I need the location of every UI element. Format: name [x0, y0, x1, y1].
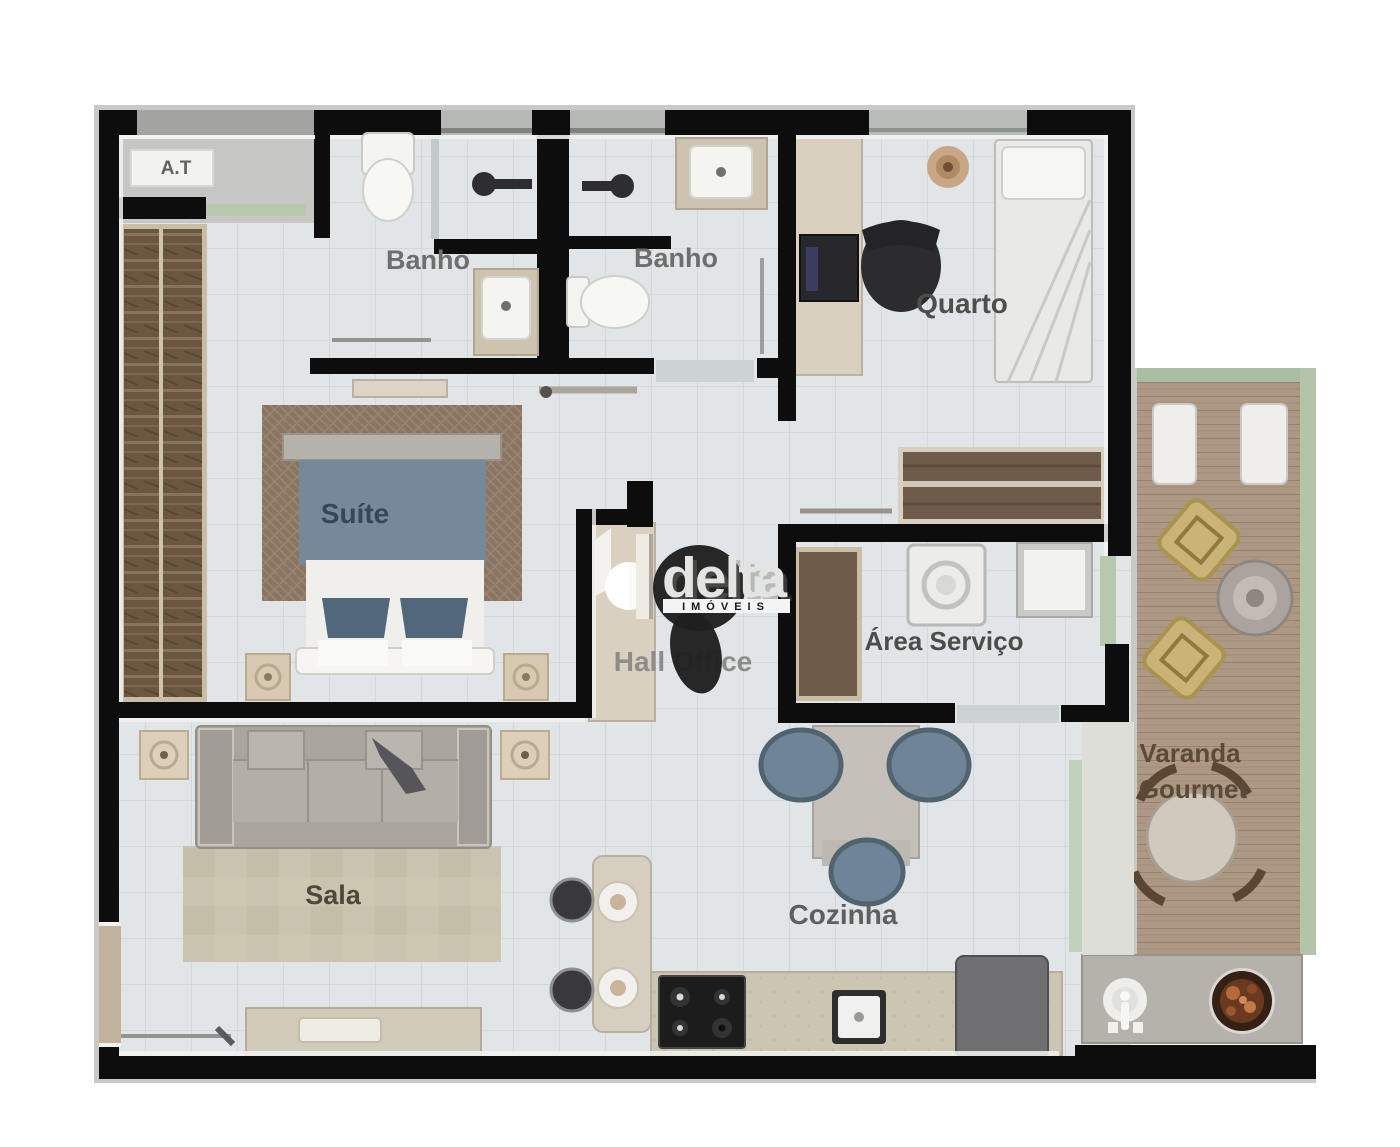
svg-text:A.T: A.T: [161, 158, 192, 179]
svg-text:IMÓVEIS: IMÓVEIS: [682, 600, 770, 613]
svg-text:Quarto: Quarto: [916, 288, 1008, 319]
svg-text:Varanda: Varanda: [1139, 738, 1241, 768]
svg-text:Área Serviço: Área Serviço: [865, 626, 1024, 656]
svg-text:Banho: Banho: [386, 245, 470, 275]
svg-text:Sala: Sala: [305, 880, 362, 910]
svg-text:Suíte: Suíte: [321, 498, 389, 529]
svg-text:Cozinha: Cozinha: [789, 899, 898, 930]
svg-text:Gourmet: Gourmet: [1139, 774, 1248, 804]
svg-text:Banho: Banho: [634, 243, 718, 273]
